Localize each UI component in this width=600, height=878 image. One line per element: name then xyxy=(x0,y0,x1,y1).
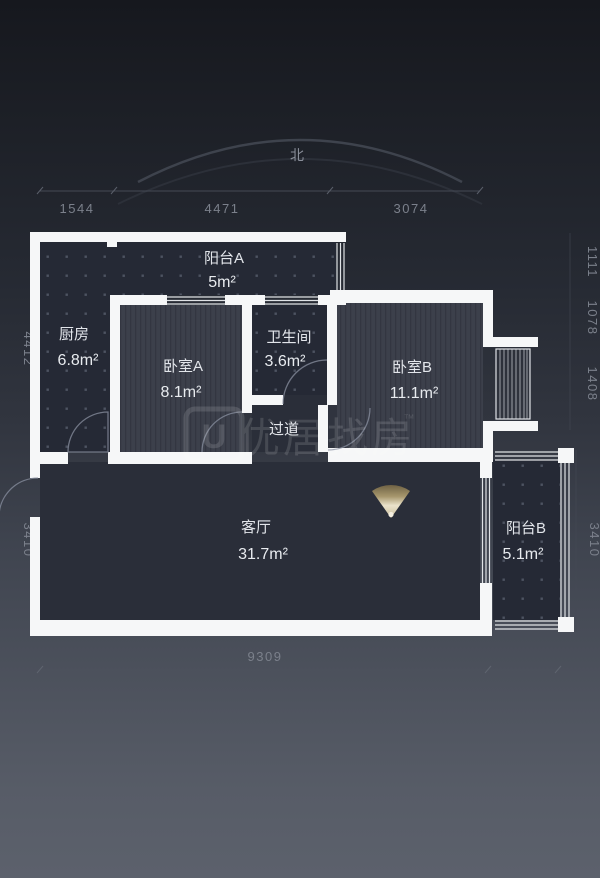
watermark-logo-letter: U xyxy=(202,418,227,456)
dim-right-1078: 1078 xyxy=(585,301,600,336)
dim-right-1408: 1408 xyxy=(585,367,600,402)
label-bedroom-a: 卧室A xyxy=(163,358,203,375)
north-label: 北 xyxy=(290,147,304,163)
wall-bay-top xyxy=(483,337,538,347)
wall-top xyxy=(30,232,346,242)
floor-living-room xyxy=(40,462,480,620)
wall-bathroom-bottom xyxy=(252,395,283,405)
wall-bedroom-b-right-lower xyxy=(483,431,493,448)
wall-left-lower xyxy=(30,517,40,636)
dim-right-3410: 3410 xyxy=(587,523,600,558)
wall-balcony-a-bottom-3 xyxy=(318,295,346,305)
wall-living-right-upper xyxy=(480,448,492,478)
window-bedroom-b-bay xyxy=(496,349,530,419)
railing-balcony-b-top xyxy=(495,452,558,460)
area-living-room: 31.7m² xyxy=(238,546,288,563)
watermark-brand-text: 优居找房 xyxy=(239,415,415,461)
floorplan-canvas: 北 1544 4471 3074 9309 4412 3410 1111 107… xyxy=(0,0,600,878)
area-bathroom: 3.6m² xyxy=(265,353,307,370)
area-bedroom-a: 8.1m² xyxy=(161,384,203,401)
dim-top-1544: 1544 xyxy=(60,201,95,216)
wall-left-upper xyxy=(30,232,40,478)
pillar-balcony-b-bottom xyxy=(558,617,574,632)
wall-bay-bottom xyxy=(483,421,538,431)
area-kitchen: 6.8m² xyxy=(58,352,100,369)
wall-bathroom-right xyxy=(327,305,337,405)
dim-right-1111: 1111 xyxy=(585,246,600,278)
label-balcony-a: 阳台A xyxy=(204,250,244,267)
wall-balcony-a-bottom-2 xyxy=(225,295,265,305)
label-bedroom-b: 卧室B xyxy=(392,359,432,376)
dim-top-4471: 4471 xyxy=(205,201,240,216)
window-balcony-a-bottom-left xyxy=(167,297,225,304)
wall-top-notch xyxy=(107,242,117,247)
window-balcony-a-bottom-right xyxy=(265,297,318,304)
railing-balcony-b-right xyxy=(561,463,569,617)
label-living-room: 客厅 xyxy=(241,519,271,536)
pillar-balcony-b-top xyxy=(558,448,574,463)
window-living-to-balcony-b xyxy=(483,478,490,583)
area-bedroom-b: 11.1m² xyxy=(390,385,439,402)
wall-bedroom-b-top xyxy=(330,290,493,303)
wall-living-right-lower xyxy=(480,583,492,620)
door-entry xyxy=(0,478,38,517)
wall-living-top-left-1 xyxy=(30,452,68,464)
label-kitchen: 厨房 xyxy=(59,326,89,343)
area-balcony-a: 5m² xyxy=(208,274,236,291)
area-balcony-b: 5.1m² xyxy=(503,546,545,563)
dim-bottom-9309: 9309 xyxy=(248,649,283,664)
wall-bottom xyxy=(30,620,492,636)
wall-kitchen-right xyxy=(110,295,120,464)
window-balcony-a-right xyxy=(337,243,344,290)
railing-balcony-b-bottom xyxy=(495,621,558,629)
watermark-trademark: ™ xyxy=(404,413,415,425)
label-balcony-b: 阳台B xyxy=(506,520,546,537)
compass-north: 北 xyxy=(118,140,482,204)
wall-bedroom-a-right xyxy=(242,305,252,413)
label-bathroom: 卫生间 xyxy=(266,329,311,346)
floorplan-page: 北 1544 4471 3074 9309 4412 3410 1111 107… xyxy=(0,0,600,878)
dim-top-3074: 3074 xyxy=(394,201,429,216)
floor-balcony-b xyxy=(493,460,560,620)
